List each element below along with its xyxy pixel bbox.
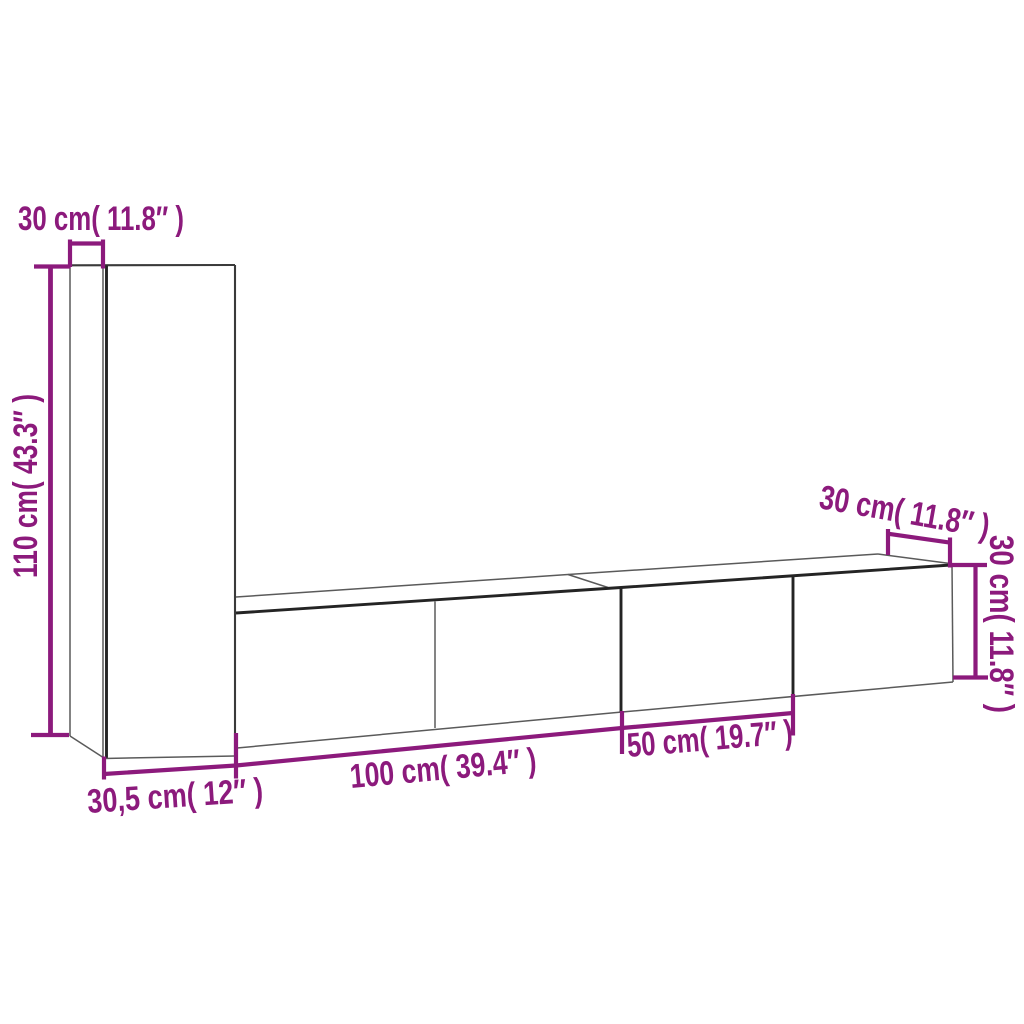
label-tall-cabinet-width: 30,5 cm( 12″ ) [86,771,264,821]
label-tall-cabinet-depth: 30 cm( 11.8″ ) [18,200,184,238]
row-bottom-front-edge [237,682,953,748]
row-mid-depth-edge [568,575,608,588]
tall-cabinet-outline [70,265,235,759]
label-tall-cabinet-height: 110 cm( 43.3″ ) [7,394,45,578]
tv-cabinet-dimension-diagram: 30 cm( 11.8″ ) 110 cm( 43.3″ ) 30,5 cm( … [0,0,1024,1024]
tall-cabinet-bottom-front-edge [104,756,235,759]
row-front-right-edge [952,565,953,683]
label-right-cabinet-height: 30 cm( 11.8″ ) [982,535,1020,713]
label-long-cabinet-width: 100 cm( 39.4″ ) [348,741,538,796]
label-small-cabinet-width: 50 cm( 19.7″ ) [625,713,794,765]
dimension-diagram-canvas: 30 cm( 11.8″ ) 110 cm( 43.3″ ) 30,5 cm( … [0,0,1024,1024]
dimension-labels: 30 cm( 11.8″ ) 110 cm( 43.3″ ) 30,5 cm( … [7,200,1020,821]
tall-cabinet-bottom-side-edge [70,736,104,758]
row-right-depth-edge [878,554,952,564]
row-back-top-edge-right [568,554,878,575]
wall-cabinet-row-outline [236,554,953,748]
